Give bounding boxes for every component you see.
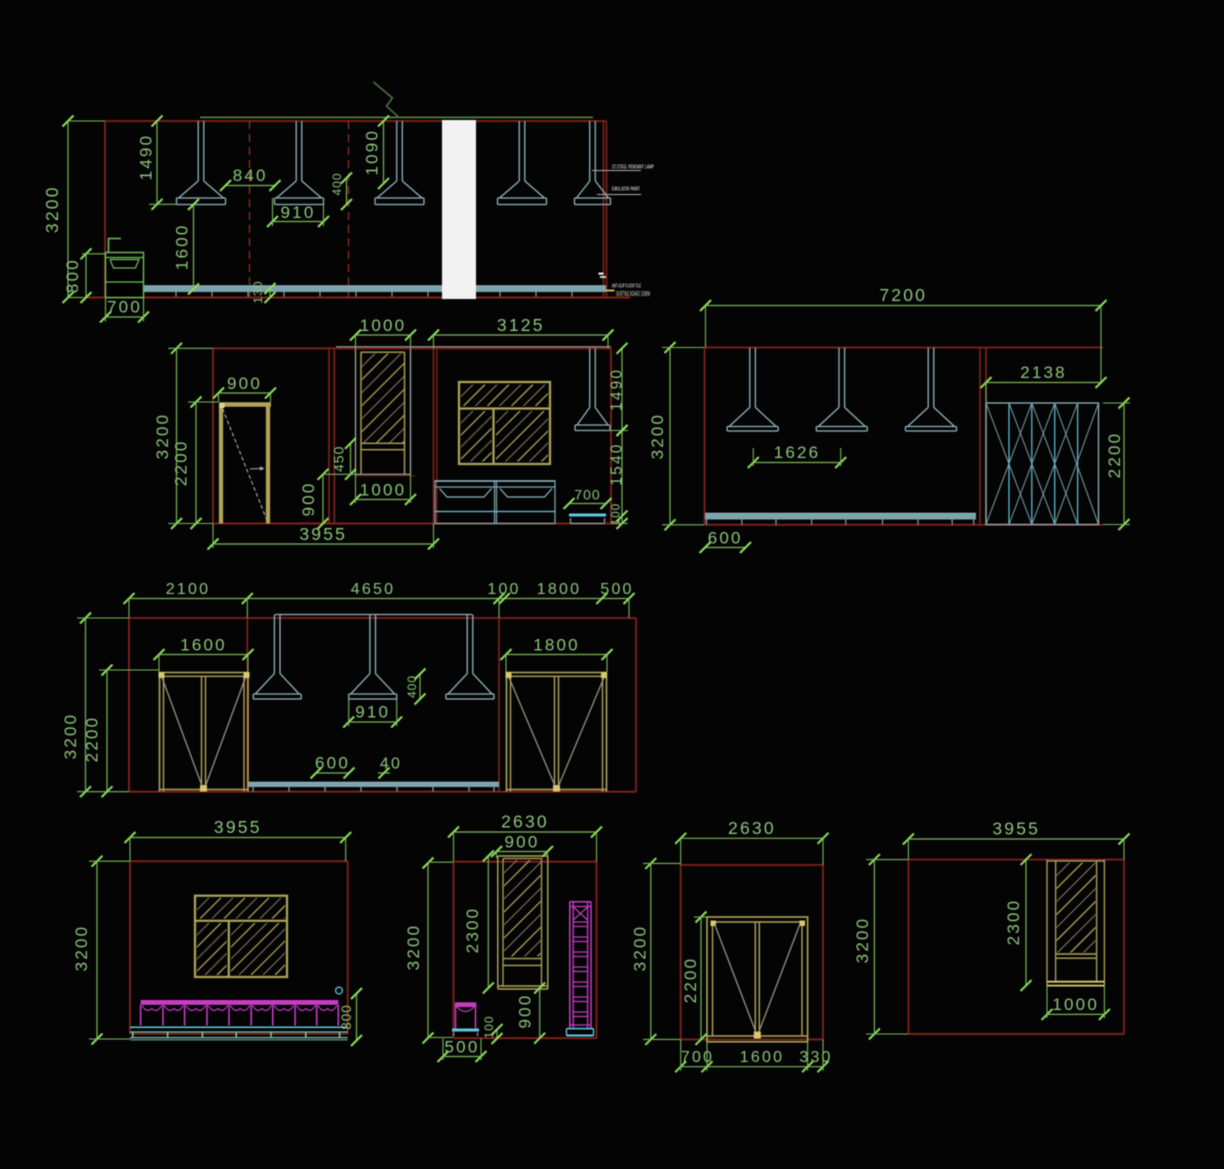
svg-text:1000: 1000	[360, 481, 407, 500]
svg-text:2300: 2300	[1004, 899, 1023, 946]
svg-text:1600: 1600	[740, 1049, 784, 1066]
svg-text:910: 910	[281, 203, 316, 222]
svg-text:700: 700	[681, 1049, 714, 1066]
svg-text:450: 450	[331, 446, 347, 472]
svg-text:3200: 3200	[61, 713, 80, 760]
svg-text:2138: 2138	[1020, 363, 1067, 382]
svg-text:840: 840	[233, 166, 268, 185]
svg-text:3125: 3125	[497, 315, 545, 335]
svg-text:100: 100	[487, 581, 520, 598]
svg-text:3955: 3955	[214, 817, 262, 837]
svg-text:3200: 3200	[648, 413, 667, 460]
svg-text:900: 900	[227, 374, 262, 393]
svg-text:1090: 1090	[363, 129, 382, 176]
svg-text:3200: 3200	[72, 925, 91, 972]
svg-text:1626: 1626	[774, 443, 821, 462]
svg-text:910: 910	[355, 703, 390, 722]
svg-text:500: 500	[445, 1038, 480, 1057]
svg-text:1490: 1490	[609, 368, 626, 411]
svg-text:800: 800	[339, 1004, 354, 1030]
svg-text:400: 400	[405, 675, 419, 698]
svg-text:1600: 1600	[173, 223, 192, 270]
svg-text:900: 900	[516, 994, 535, 1029]
svg-text:ANTI-SLIP FLOOR TILE: ANTI-SLIP FLOOR TILE	[612, 284, 641, 290]
svg-text:1490: 1490	[137, 134, 156, 181]
svg-text:600: 600	[315, 754, 350, 773]
svg-text:7200: 7200	[879, 285, 927, 305]
svg-text:2200: 2200	[681, 957, 700, 1004]
svg-text:3955: 3955	[299, 524, 347, 544]
svg-text:2630: 2630	[501, 812, 549, 832]
svg-text:2200: 2200	[83, 716, 102, 763]
svg-text:2300: 2300	[463, 907, 482, 954]
svg-text:900: 900	[299, 481, 318, 516]
svg-text:100: 100	[482, 1015, 496, 1038]
svg-text:ST.STEEL PENDANT LAMP: ST.STEEL PENDANT LAMP	[612, 165, 654, 171]
svg-text:1800: 1800	[537, 581, 581, 598]
svg-text:2100: 2100	[166, 581, 210, 598]
svg-text:3955: 3955	[992, 819, 1040, 839]
svg-text:130: 130	[251, 280, 265, 303]
svg-text:1600: 1600	[180, 636, 227, 655]
svg-text:3200: 3200	[404, 924, 423, 971]
svg-text:3200: 3200	[631, 925, 650, 972]
svg-text:1000: 1000	[1052, 995, 1099, 1014]
svg-text:1000: 1000	[360, 316, 407, 335]
svg-text:600: 600	[708, 529, 743, 548]
svg-text:1800: 1800	[533, 636, 580, 655]
svg-text:100: 100	[611, 503, 623, 525]
svg-text:330: 330	[799, 1049, 832, 1066]
svg-text:3200: 3200	[153, 413, 172, 460]
svg-text:3200: 3200	[42, 185, 62, 233]
svg-text:400: 400	[330, 172, 344, 195]
svg-text:4650: 4650	[351, 581, 395, 598]
svg-text:2200: 2200	[172, 439, 191, 486]
svg-text:40: 40	[380, 756, 402, 773]
svg-text:3200: 3200	[853, 917, 872, 964]
svg-text:2200: 2200	[1105, 432, 1124, 479]
svg-text:800: 800	[63, 258, 82, 293]
svg-text:500: 500	[600, 581, 633, 598]
svg-text:EMULSION PAINT: EMULSION PAINT	[612, 187, 640, 193]
svg-text:1540: 1540	[609, 442, 626, 485]
svg-text:700: 700	[107, 298, 142, 317]
svg-text:700: 700	[574, 487, 600, 503]
svg-text:900: 900	[505, 833, 540, 852]
svg-text:SKIRTING BOARD 130MM: SKIRTING BOARD 130MM	[616, 291, 650, 298]
svg-text:2630: 2630	[728, 818, 776, 838]
